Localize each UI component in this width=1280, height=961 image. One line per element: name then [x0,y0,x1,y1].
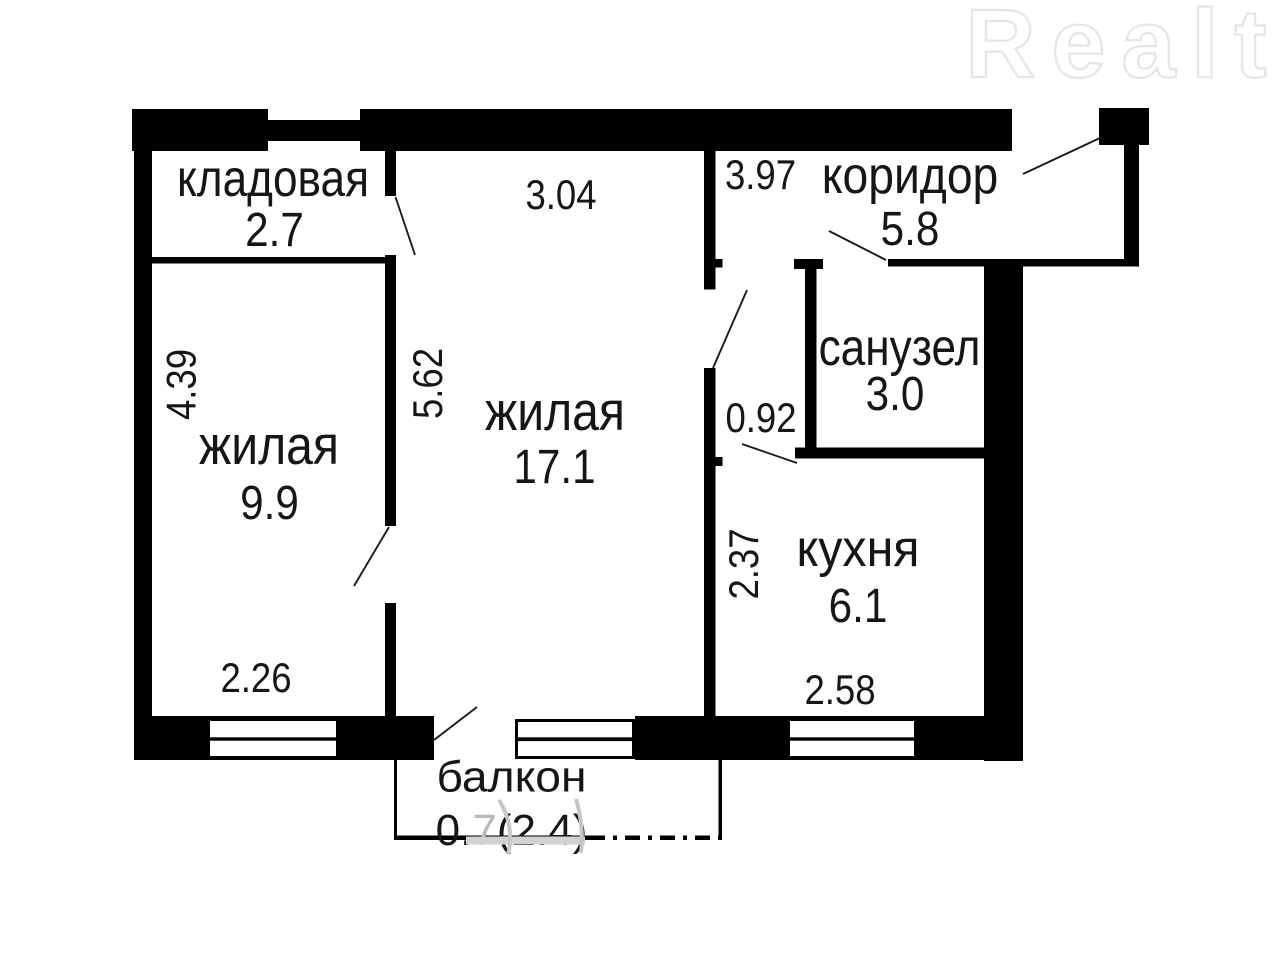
svg-text:жилая: жилая [199,414,339,476]
svg-text:9.9: 9.9 [240,475,299,529]
svg-text:5.62: 5.62 [405,348,452,419]
svg-text:Realt: Realt [965,0,1280,98]
svg-text:коридор: коридор [822,147,999,205]
svg-text:0.92: 0.92 [725,395,796,442]
svg-text:6.1: 6.1 [829,578,888,632]
svg-text:3.04: 3.04 [525,172,596,219]
svg-text:2.37: 2.37 [721,528,768,599]
svg-text:жилая: жилая [485,380,625,442]
svg-text:5.8: 5.8 [881,201,940,255]
svg-text:2.7: 2.7 [245,202,304,256]
svg-text:балкон: балкон [437,752,587,802]
svg-text:кладовая: кладовая [177,150,369,208]
svg-text:2.26: 2.26 [220,655,291,702]
svg-text:3.0: 3.0 [866,366,925,420]
svg-text:2.58: 2.58 [804,667,875,714]
svg-text:17.1: 17.1 [513,439,595,493]
svg-text:3.97: 3.97 [725,152,796,199]
svg-text:кухня: кухня [797,519,920,577]
svg-text:4.39: 4.39 [158,349,205,420]
